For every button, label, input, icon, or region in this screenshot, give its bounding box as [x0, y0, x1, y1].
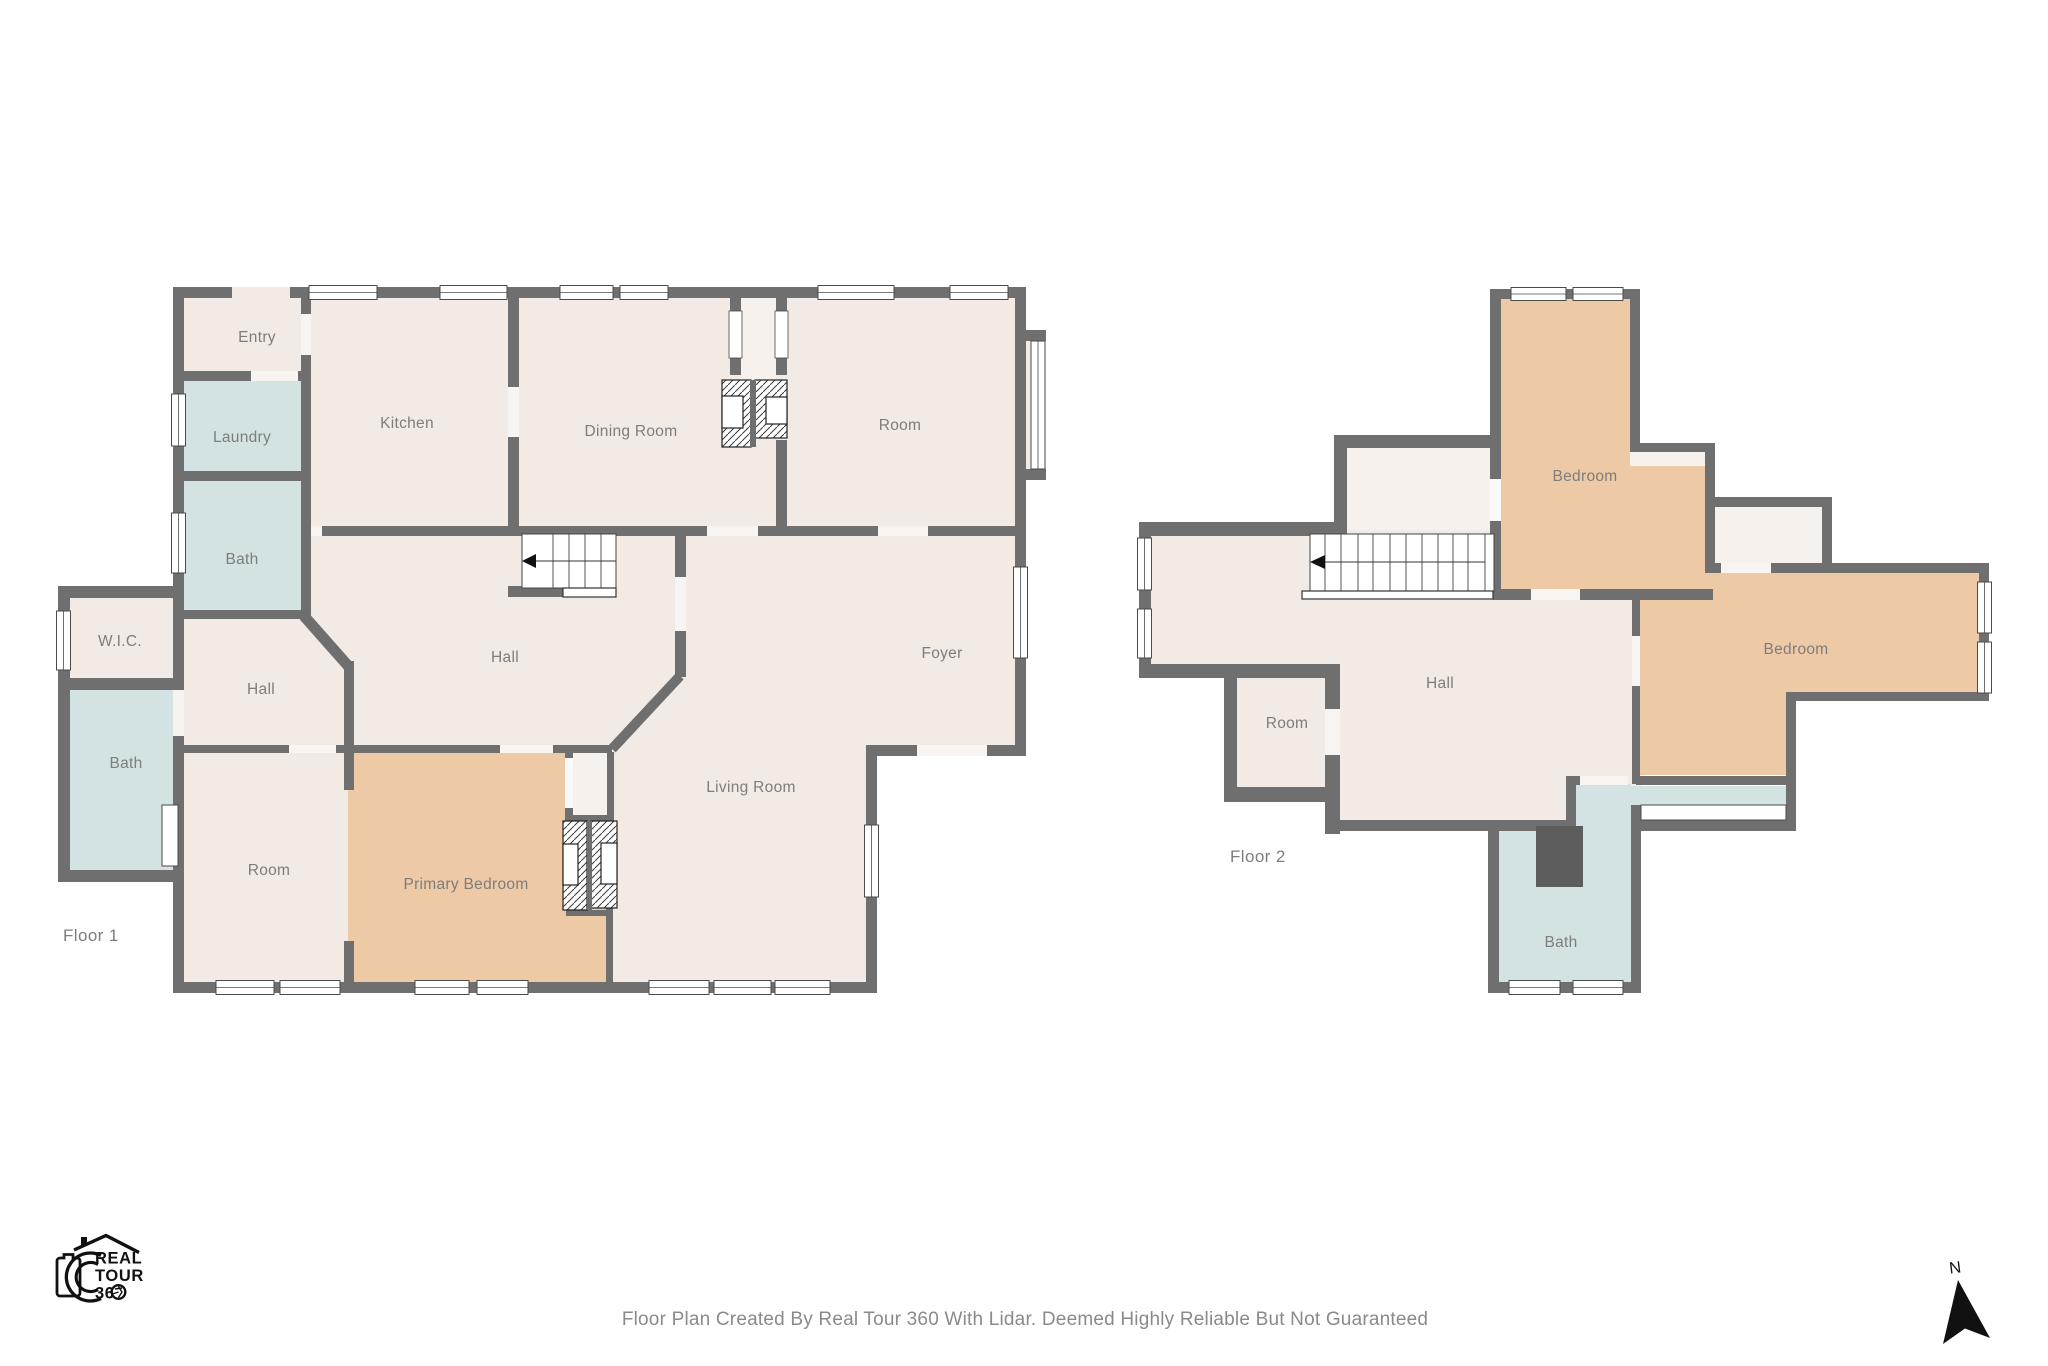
svg-text:Entry: Entry: [238, 329, 276, 346]
svg-text:REAL: REAL: [95, 1250, 142, 1268]
svg-text:Floor 1: Floor 1: [63, 926, 119, 945]
svg-text:TOUR: TOUR: [95, 1267, 144, 1285]
svg-text:Room: Room: [248, 862, 291, 879]
svg-text:Room: Room: [879, 417, 922, 434]
svg-text:Dining Room: Dining Room: [585, 423, 678, 440]
svg-text:Foyer: Foyer: [921, 645, 962, 662]
svg-text:Laundry: Laundry: [213, 429, 271, 446]
svg-text:Bath: Bath: [225, 551, 258, 568]
svg-text:Room: Room: [1266, 715, 1309, 732]
svg-text:Bath: Bath: [1544, 934, 1577, 951]
svg-text:N: N: [1948, 1258, 1962, 1277]
svg-text:Floor 2: Floor 2: [1230, 847, 1286, 866]
svg-text:Living Room: Living Room: [706, 779, 795, 796]
svg-text:Bedroom: Bedroom: [1764, 641, 1829, 658]
svg-text:Hall: Hall: [491, 649, 519, 666]
svg-text:Hall: Hall: [1426, 675, 1454, 692]
svg-text:Floor Plan Created By Real Tou: Floor Plan Created By Real Tour 360 With…: [622, 1309, 1428, 1330]
svg-text:Primary Bedroom: Primary Bedroom: [403, 876, 528, 893]
svg-text:Bedroom: Bedroom: [1553, 468, 1618, 485]
svg-text:Hall: Hall: [247, 681, 275, 698]
svg-text:Bath: Bath: [109, 755, 142, 772]
svg-text:Kitchen: Kitchen: [380, 415, 434, 432]
svg-text:W.I.C.: W.I.C.: [98, 633, 142, 650]
